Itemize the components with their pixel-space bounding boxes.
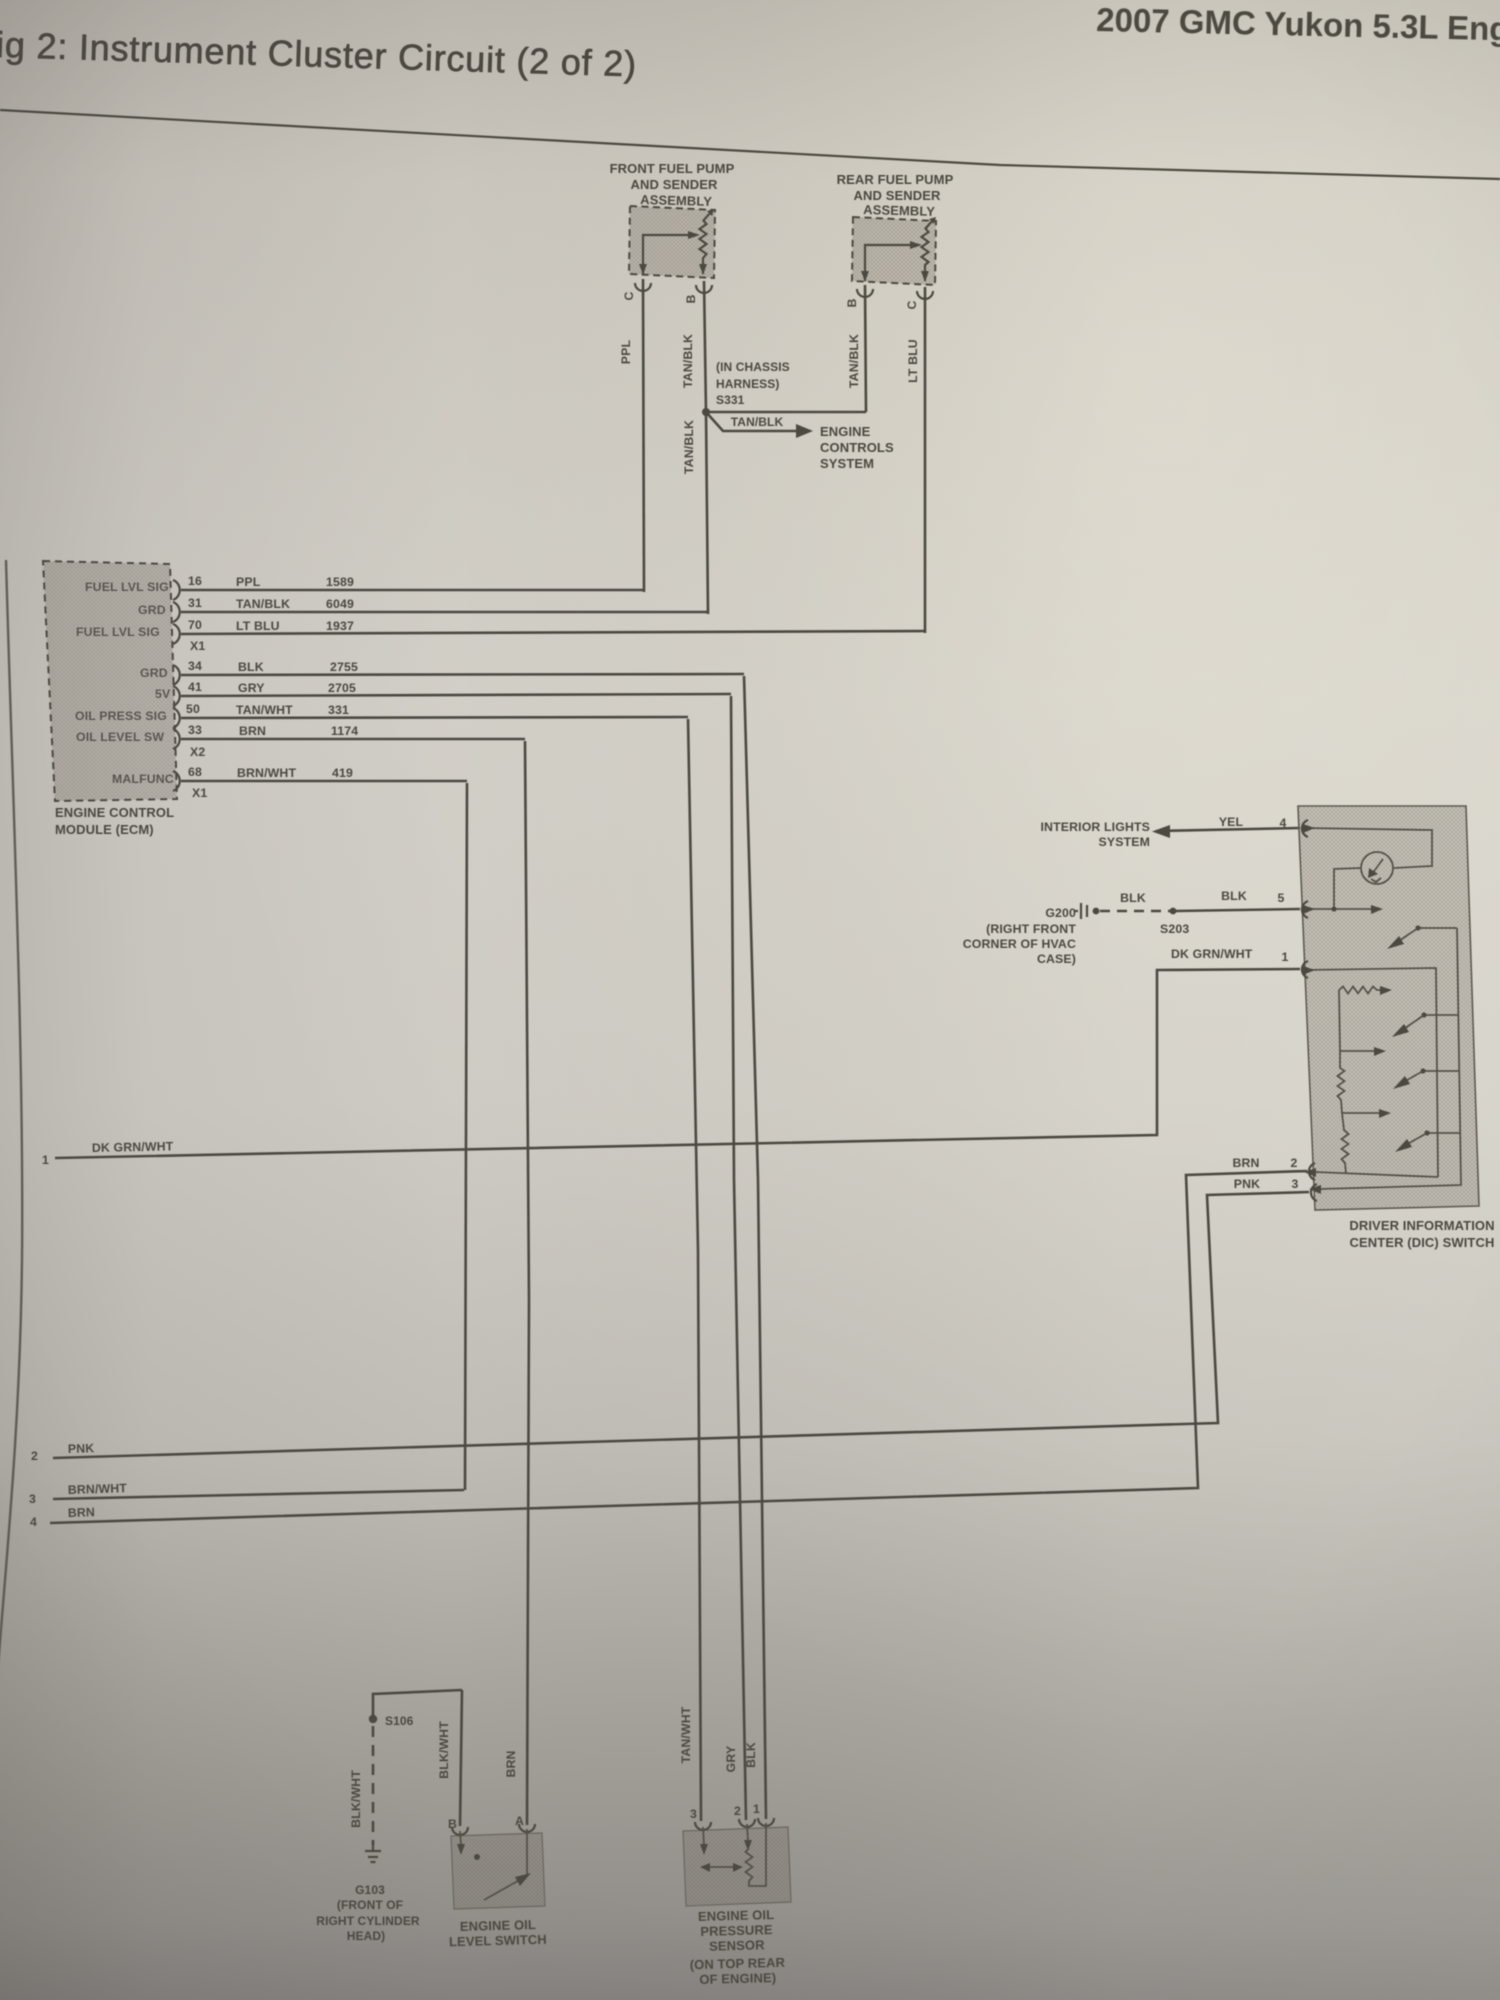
svg-text:FUEL LVL SIG: FUEL LVL SIG [76,625,160,639]
svg-text:C: C [622,291,636,300]
svg-text:4: 4 [30,1515,37,1529]
svg-text:SYSTEM: SYSTEM [1099,835,1150,849]
svg-text:GRD: GRD [138,603,166,617]
svg-text:1174: 1174 [331,724,358,738]
svg-text:CENTER (DIC) SWITCH: CENTER (DIC) SWITCH [1350,1235,1495,1250]
svg-text:50: 50 [186,702,200,716]
svg-text:BLK: BLK [744,1742,758,1768]
svg-text:LEVEL SWITCH: LEVEL SWITCH [449,1932,547,1950]
svg-text:OIL PRESS SIG: OIL PRESS SIG [75,709,167,723]
svg-text:PNK: PNK [1234,1177,1260,1191]
svg-text:1589: 1589 [326,575,354,589]
svg-text:4: 4 [1280,816,1287,830]
svg-text:INTERIOR LIGHTS: INTERIOR LIGHTS [1040,820,1150,834]
svg-text:FUEL LVL SIG: FUEL LVL SIG [85,580,169,594]
svg-text:YEL: YEL [1219,815,1244,829]
svg-text:BRN/WHT: BRN/WHT [237,766,296,780]
svg-text:B: B [448,1817,457,1831]
svg-text:PPL: PPL [236,575,261,589]
svg-text:33: 33 [188,723,202,737]
svg-text:5V: 5V [155,687,171,701]
svg-text:(IN CHASSIS: (IN CHASSIS [716,360,790,374]
svg-text:GRY: GRY [724,1746,738,1773]
svg-text:1: 1 [1282,950,1289,964]
svg-text:X1: X1 [190,639,205,653]
svg-text:BLK: BLK [1120,891,1146,905]
svg-text:BRN: BRN [68,1505,96,1520]
svg-text:SENSOR: SENSOR [709,1937,765,1953]
svg-text:TAN/BLK: TAN/BLK [847,334,861,388]
svg-text:SYSTEM: SYSTEM [820,456,874,471]
svg-text:1937: 1937 [326,619,354,633]
svg-text:ASSEMBLY: ASSEMBLY [863,202,935,219]
svg-text:BLK: BLK [238,660,264,674]
svg-text:FRONT FUEL PUMP: FRONT FUEL PUMP [610,161,735,176]
svg-text:RIGHT CYLINDER: RIGHT CYLINDER [316,1914,420,1928]
svg-text:MODULE (ECM): MODULE (ECM) [55,822,154,837]
svg-text:6049: 6049 [326,597,354,611]
svg-text:G103: G103 [355,1883,385,1897]
svg-text:1: 1 [753,1802,760,1816]
svg-text:S331: S331 [716,393,745,407]
svg-text:GRD: GRD [140,666,168,680]
svg-text:LT BLU: LT BLU [906,339,920,383]
svg-text:OF ENGINE): OF ENGINE) [699,1970,776,1987]
svg-text:2755: 2755 [330,660,358,674]
svg-text:OIL LEVEL SW: OIL LEVEL SW [76,730,164,744]
svg-text:DRIVER INFORMATION: DRIVER INFORMATION [1349,1218,1494,1233]
svg-text:(FRONT OF: (FRONT OF [337,1898,403,1912]
svg-text:CORNER OF HVAC: CORNER OF HVAC [963,937,1076,951]
svg-text:5: 5 [1278,891,1285,905]
svg-text:3: 3 [29,1492,36,1506]
svg-text:TAN/WHT: TAN/WHT [236,703,293,717]
svg-text:S203: S203 [1160,922,1189,936]
svg-text:TAN/BLK: TAN/BLK [236,597,290,611]
svg-text:B: B [845,298,859,307]
svg-text:2705: 2705 [328,681,356,695]
svg-text:MALFUNC: MALFUNC [112,772,174,786]
svg-text:DK GRN/WHT: DK GRN/WHT [92,1139,174,1155]
svg-text:AND SENDER: AND SENDER [854,188,941,203]
svg-text:S106: S106 [385,1714,414,1728]
svg-text:2: 2 [734,1804,741,1818]
svg-text:GRY: GRY [238,681,265,695]
svg-text:TAN/BLK: TAN/BLK [731,415,784,429]
svg-text:31: 31 [188,596,202,610]
svg-text:BRN/WHT: BRN/WHT [68,1481,128,1497]
svg-text:AND SENDER: AND SENDER [631,177,718,192]
svg-text:C: C [905,300,919,309]
svg-text:68: 68 [188,765,202,779]
svg-text:2: 2 [31,1449,38,1463]
svg-text:CASE): CASE) [1037,952,1076,966]
svg-text:TAN/WHT: TAN/WHT [679,1706,693,1763]
svg-text:(RIGHT FRONT: (RIGHT FRONT [986,922,1076,936]
svg-text:1: 1 [42,1153,49,1167]
svg-text:TAN/BLK: TAN/BLK [682,420,696,474]
svg-text:REAR FUEL PUMP: REAR FUEL PUMP [837,172,954,187]
svg-text:G200: G200 [1045,906,1076,920]
svg-text:HARNESS): HARNESS) [716,377,779,391]
svg-text:BRN: BRN [1232,1156,1259,1170]
svg-text:16: 16 [188,574,202,588]
svg-text:2: 2 [1291,1156,1298,1170]
svg-text:331: 331 [328,703,349,717]
svg-text:PNK: PNK [68,1441,95,1456]
svg-text:70: 70 [188,618,202,632]
svg-text:BLK: BLK [1221,889,1247,903]
svg-text:HEAD): HEAD) [347,1929,386,1943]
svg-text:B: B [684,294,698,303]
svg-text:419: 419 [332,766,353,780]
svg-text:LT BLU: LT BLU [236,619,280,633]
svg-text:BRN: BRN [239,724,266,738]
svg-text:TAN/BLK: TAN/BLK [681,334,695,388]
svg-text:34: 34 [188,659,202,673]
svg-text:ASSEMBLY: ASSEMBLY [640,192,712,209]
svg-text:3: 3 [690,1807,697,1821]
svg-text:BLK/WHT: BLK/WHT [349,1770,363,1828]
svg-text:A: A [515,1814,524,1828]
svg-text:ENGINE: ENGINE [820,424,871,439]
svg-text:41: 41 [188,680,202,694]
svg-text:BLK/WHT: BLK/WHT [437,1721,451,1779]
svg-text:X1: X1 [192,786,207,800]
svg-text:X2: X2 [190,745,205,759]
svg-text:PPL: PPL [619,339,633,364]
svg-text:3: 3 [1292,1177,1299,1191]
svg-text:ENGINE CONTROL: ENGINE CONTROL [55,805,174,820]
svg-text:BRN: BRN [504,1750,518,1777]
svg-text:DK GRN/WHT: DK GRN/WHT [1171,947,1253,961]
svg-text:CONTROLS: CONTROLS [820,440,894,455]
